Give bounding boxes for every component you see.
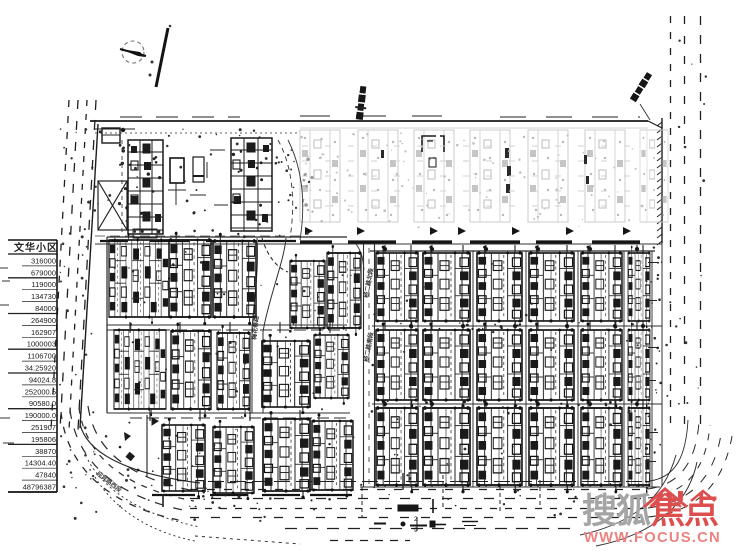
svg-text:47840: 47840: [35, 471, 56, 480]
svg-text:文华小区: 文华小区: [14, 241, 58, 254]
svg-text:119000: 119000: [32, 280, 56, 289]
svg-text:84000: 84000: [35, 304, 56, 313]
svg-text:搜狐: 搜狐: [582, 492, 651, 531]
svg-text:264900: 264900: [31, 316, 56, 325]
svg-text:316000: 316000: [31, 256, 56, 265]
svg-text:90580.0: 90580.0: [29, 399, 56, 408]
svg-text:252000.5: 252000.5: [25, 387, 56, 396]
svg-text:94024.8: 94024.8: [29, 375, 56, 384]
svg-text:162907: 162907: [31, 328, 56, 337]
svg-text:134730: 134730: [31, 292, 56, 301]
svg-text:38870: 38870: [35, 447, 56, 456]
svg-text:190000.0: 190000.0: [25, 411, 56, 420]
svg-text:195806: 195806: [31, 435, 56, 444]
svg-text:34.25920: 34.25920: [25, 364, 56, 373]
svg-text:14304.40: 14304.40: [25, 459, 56, 468]
svg-text:251907: 251907: [31, 423, 56, 432]
svg-text:1000003: 1000003: [27, 340, 56, 349]
svg-text:1106700: 1106700: [27, 352, 56, 361]
svg-text:48796387: 48796387: [23, 483, 56, 492]
svg-text:679000: 679000: [31, 268, 56, 277]
svg-text:WWW.FOCUS.CN: WWW.FOCUS.CN: [584, 530, 721, 546]
